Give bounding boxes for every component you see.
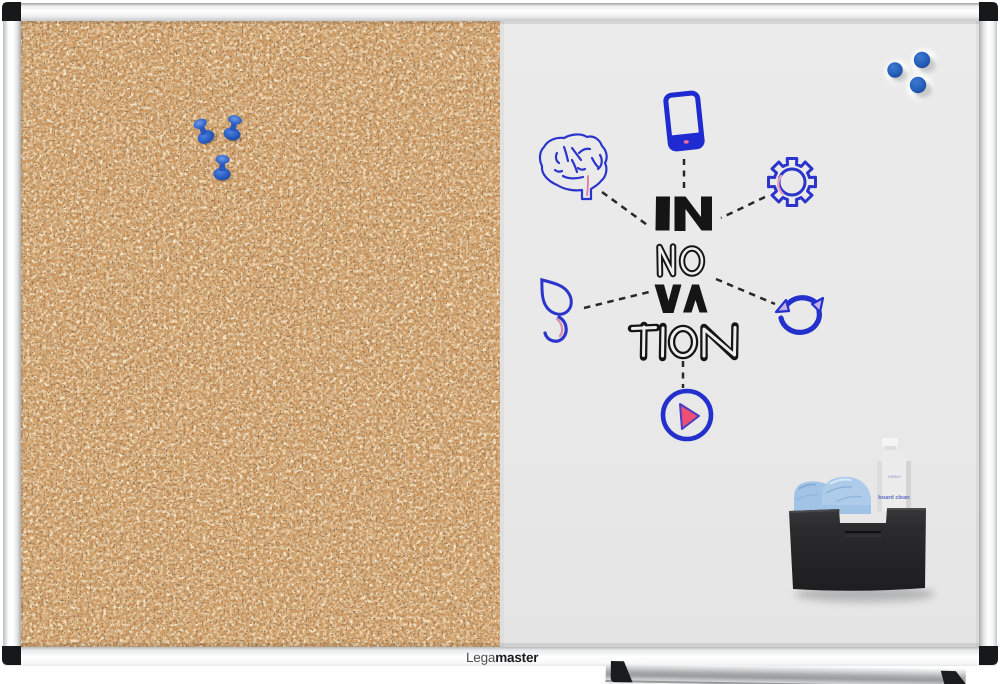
svg-text:board clean: board clean [878,494,910,501]
svg-text:Legamaster: Legamaster [466,650,539,665]
svg-text:clean+: clean+ [888,474,902,479]
